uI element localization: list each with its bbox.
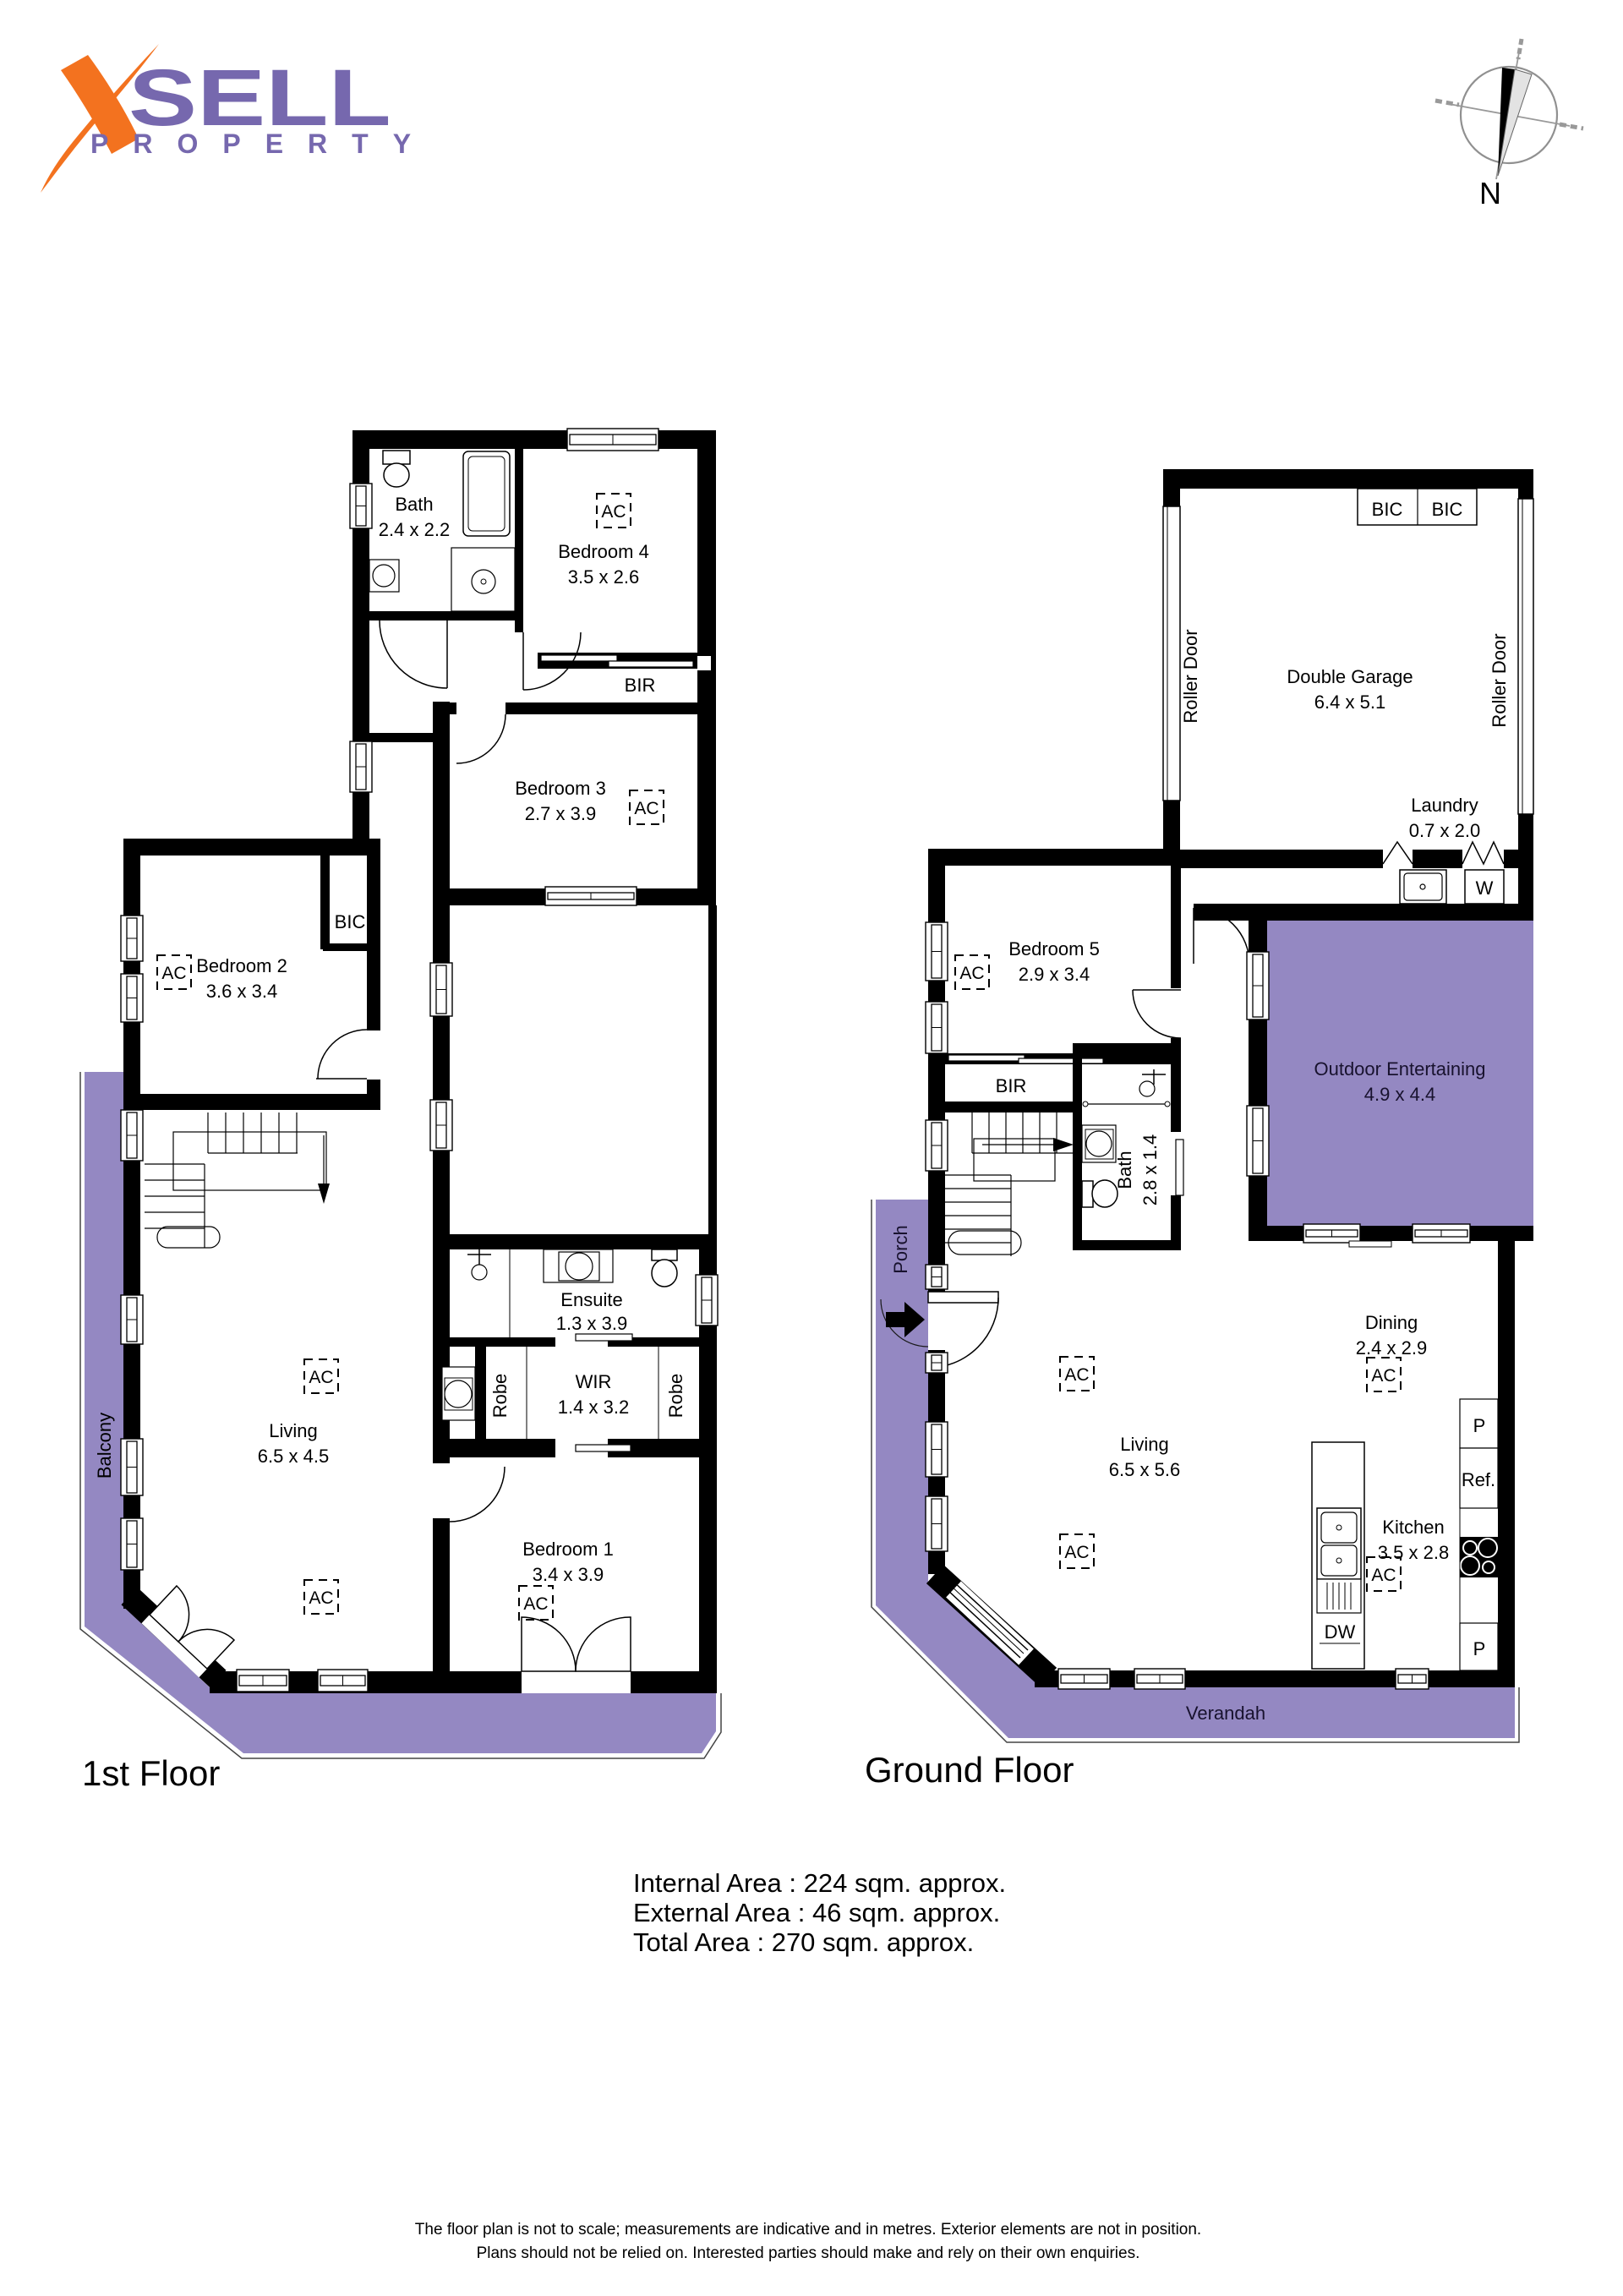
svg-text:AC: AC (523, 1594, 548, 1614)
svg-text:Bedroom 4: Bedroom 4 (558, 541, 649, 562)
svg-text:BIC: BIC (335, 911, 366, 932)
svg-text:BIC: BIC (1432, 499, 1463, 520)
svg-text:4.9 x 4.4: 4.9 x 4.4 (1364, 1084, 1435, 1105)
svg-text:P: P (1473, 1638, 1486, 1659)
svg-text:6.5 x 5.6: 6.5 x 5.6 (1109, 1459, 1180, 1480)
svg-text:AC: AC (161, 964, 186, 983)
svg-text:Verandah: Verandah (1186, 1703, 1265, 1724)
svg-text:Bedroom 5: Bedroom 5 (1008, 938, 1100, 959)
svg-text:Porch: Porch (890, 1225, 911, 1273)
svg-text:AC: AC (1371, 1566, 1396, 1585)
svg-text:6.4 x 5.1: 6.4 x 5.1 (1314, 692, 1385, 713)
svg-text:3.5 x 2.6: 3.5 x 2.6 (568, 566, 639, 588)
svg-text:BIR: BIR (625, 675, 656, 696)
svg-text:AC: AC (959, 964, 984, 983)
svg-text:AC: AC (634, 799, 658, 818)
svg-text:BIC: BIC (1372, 499, 1403, 520)
svg-text:Internal Area : 224 sqm. appro: Internal Area : 224 sqm. approx. (633, 1868, 1006, 1898)
svg-text:Ground Floor: Ground Floor (865, 1750, 1074, 1790)
svg-text:Laundry: Laundry (1411, 795, 1478, 816)
svg-text:2.4 x 2.9: 2.4 x 2.9 (1356, 1337, 1427, 1358)
svg-text:Bedroom 2: Bedroom 2 (196, 955, 287, 976)
svg-text:Plans should not be relied on.: Plans should not be relied on. Intereste… (477, 2244, 1140, 2262)
svg-text:Living: Living (269, 1420, 317, 1441)
svg-text:3.4 x 3.9: 3.4 x 3.9 (533, 1564, 604, 1585)
svg-text:3.5 x 2.8: 3.5 x 2.8 (1378, 1542, 1449, 1563)
svg-text:P: P (1473, 1415, 1486, 1436)
svg-text:Ensuite: Ensuite (560, 1289, 622, 1310)
svg-text:Ref.: Ref. (1462, 1469, 1495, 1490)
svg-text:Bedroom 3: Bedroom 3 (515, 778, 606, 799)
svg-text:0.7 x 2.0: 0.7 x 2.0 (1409, 820, 1480, 841)
svg-text:2.7 x 3.9: 2.7 x 3.9 (525, 803, 596, 824)
svg-text:Bedroom 1: Bedroom 1 (522, 1539, 614, 1560)
svg-text:Bath: Bath (395, 494, 433, 515)
svg-text:N: N (1479, 176, 1501, 210)
svg-text:The floor plan is not to scale: The floor plan is not to scale; measurem… (415, 2221, 1201, 2239)
svg-text:Bath: Bath (1114, 1151, 1135, 1189)
svg-text:BIR: BIR (996, 1075, 1027, 1096)
svg-text:Robe: Robe (489, 1374, 511, 1419)
svg-text:Kitchen: Kitchen (1382, 1517, 1444, 1538)
svg-text:Roller Door: Roller Door (1489, 633, 1510, 727)
svg-text:Living: Living (1120, 1434, 1168, 1455)
svg-text:1.3 x 3.9: 1.3 x 3.9 (556, 1313, 627, 1334)
svg-text:PROPERTY: PROPERTY (90, 128, 435, 159)
svg-text:Dining: Dining (1365, 1312, 1418, 1333)
svg-text:Balcony: Balcony (94, 1413, 115, 1479)
svg-text:2.9 x 3.4: 2.9 x 3.4 (1019, 964, 1090, 985)
svg-text:AC: AC (1064, 1543, 1089, 1562)
svg-text:Roller Door: Roller Door (1180, 629, 1201, 723)
svg-text:Double Garage: Double Garage (1287, 666, 1413, 687)
svg-text:Robe: Robe (665, 1374, 686, 1419)
svg-text:AC: AC (309, 1588, 333, 1608)
svg-text:AC: AC (1371, 1366, 1396, 1386)
svg-text:6.5 x 4.5: 6.5 x 4.5 (258, 1446, 329, 1467)
svg-text:1.4 x 3.2: 1.4 x 3.2 (558, 1397, 629, 1418)
svg-text:1st Floor: 1st Floor (82, 1753, 220, 1793)
svg-text:2.8 x 1.4: 2.8 x 1.4 (1139, 1134, 1161, 1205)
svg-text:DW: DW (1325, 1621, 1356, 1643)
svg-text:AC: AC (601, 502, 626, 522)
svg-text:External Area : 46 sqm. approx: External Area : 46 sqm. approx. (633, 1898, 1000, 1927)
svg-text:2.4 x 2.2: 2.4 x 2.2 (379, 519, 450, 540)
svg-text:3.6 x 3.4: 3.6 x 3.4 (206, 981, 277, 1002)
svg-text:WIR: WIR (576, 1371, 612, 1392)
svg-text:W: W (1476, 877, 1494, 899)
svg-text:AC: AC (1064, 1365, 1089, 1385)
svg-text:Total Area : 270 sqm. approx.: Total Area : 270 sqm. approx. (633, 1927, 974, 1957)
svg-text:Outdoor Entertaining: Outdoor Entertaining (1314, 1058, 1485, 1080)
svg-text:AC: AC (309, 1368, 333, 1387)
